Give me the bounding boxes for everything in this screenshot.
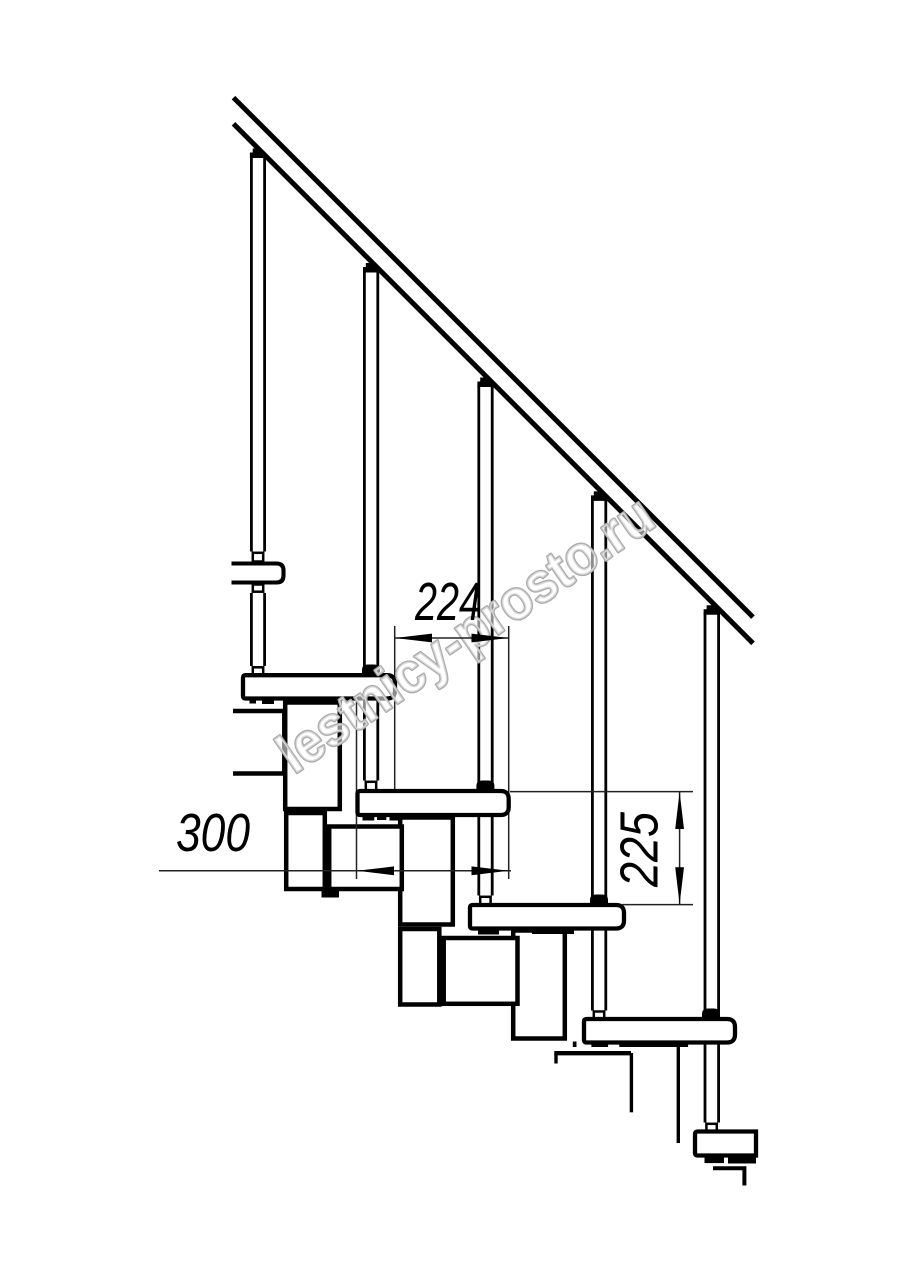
- svg-text:224: 224: [414, 572, 481, 632]
- svg-text:300: 300: [176, 803, 250, 863]
- svg-text:225: 225: [610, 811, 670, 888]
